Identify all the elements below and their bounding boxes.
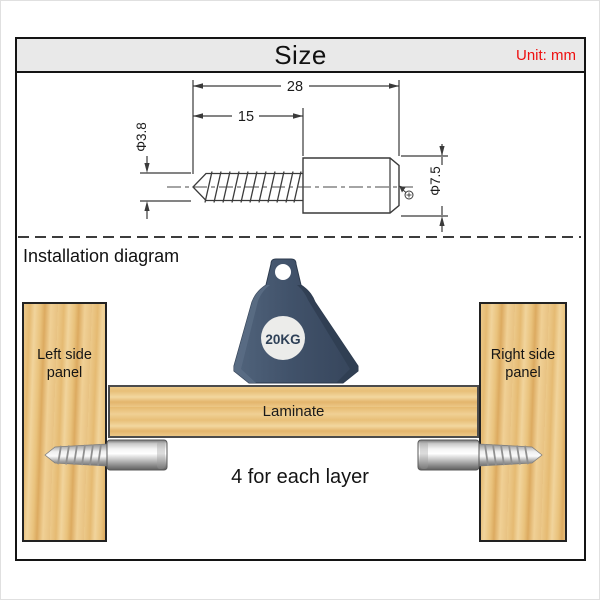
laminate-shelf: Laminate	[108, 385, 479, 438]
installation-section-title: Installation diagram	[23, 246, 179, 267]
quantity-note: 4 for each layer	[0, 466, 600, 489]
phillips-drive-icon	[403, 190, 413, 199]
right-side-panel: Right side panel	[479, 302, 567, 542]
dim-thread-diameter: Φ3.8	[134, 122, 149, 152]
left-panel-label-line2: panel	[47, 364, 82, 382]
right-panel-label-line2: panel	[505, 364, 540, 382]
screw-head-outline	[303, 158, 399, 213]
barrel-end-shading	[420, 441, 428, 469]
dim-thread-length: 15	[238, 109, 254, 125]
left-panel-label-line1: Left side	[37, 346, 92, 364]
weight-value: 20KG	[265, 332, 300, 347]
barrel-end-shading	[157, 441, 165, 469]
dim-head-diameter: Φ7.5	[428, 166, 443, 196]
unit-label: Unit: mm	[516, 47, 576, 64]
right-panel-label-line1: Right side	[491, 346, 555, 364]
left-side-panel: Left side panel	[22, 302, 107, 542]
weight-icon: 20KG	[227, 252, 364, 386]
laminate-label: Laminate	[263, 403, 325, 420]
page-title: Size	[274, 40, 327, 71]
screw-size-drawing: 28 15 Φ3.8 Φ7.5	[15, 72, 585, 242]
weight-ring-hole	[275, 264, 291, 280]
product-diagram-canvas: Size Unit: mm	[0, 0, 600, 600]
dim-total-length: 28	[287, 79, 303, 95]
size-header: Size Unit: mm	[17, 39, 584, 73]
